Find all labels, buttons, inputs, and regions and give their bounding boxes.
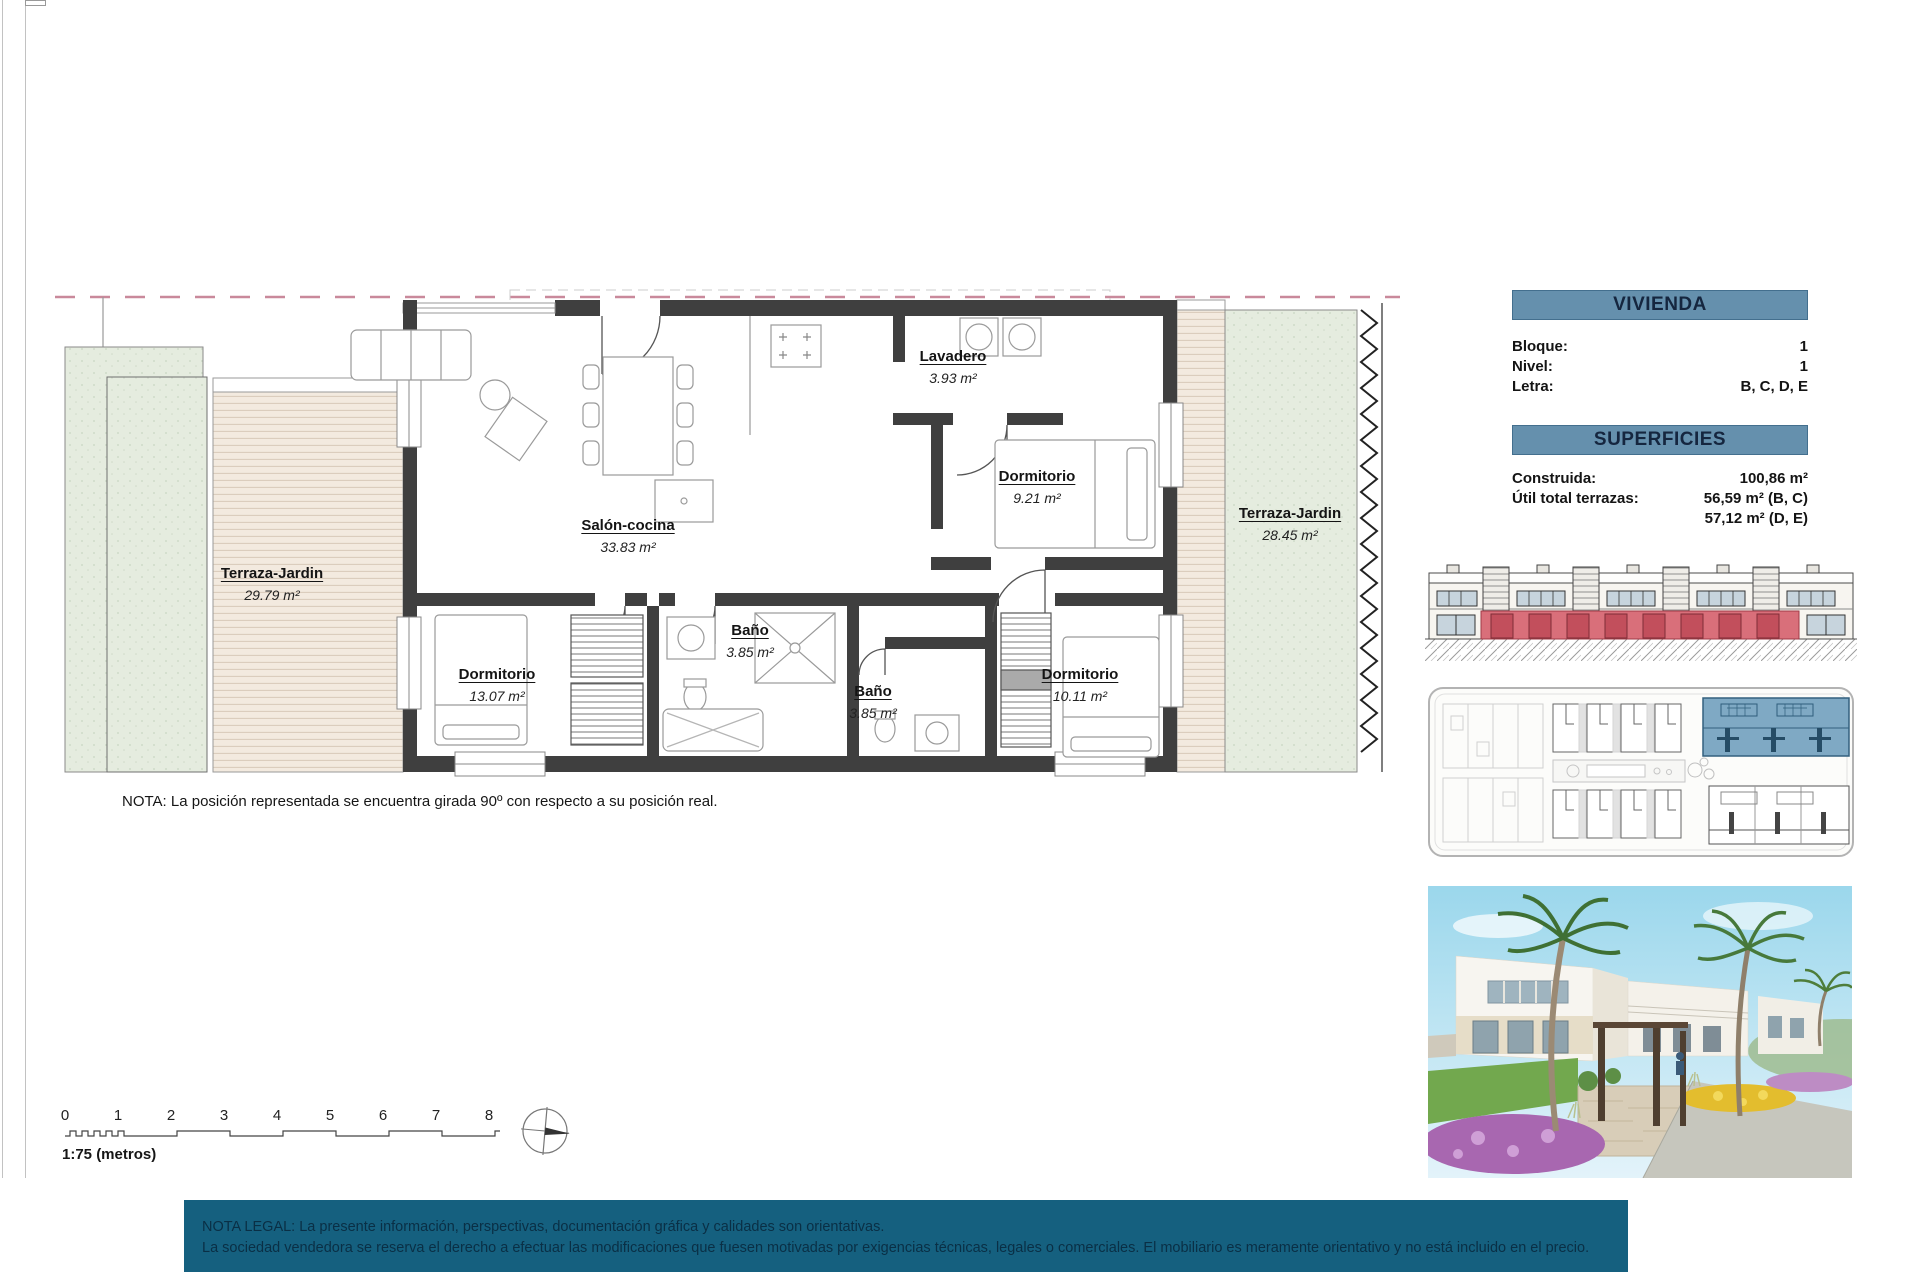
- vivienda-row-bloque: Bloque: 1: [1512, 338, 1808, 356]
- scale-tick-4: 4: [273, 1107, 281, 1124]
- superficies-row-terrazas: Útil total terrazas: 56,59 m² (B, C): [1512, 490, 1808, 508]
- scale-tick-3: 3: [220, 1107, 228, 1124]
- scale-tick-6: 6: [379, 1107, 387, 1124]
- vivienda-row-letra: Letra: B, C, D, E: [1512, 378, 1808, 396]
- plan-sheet-page: Salón-cocina 33.83 m² Lavadero 3.93 m² D…: [0, 0, 1920, 1280]
- siteplan-bottom-row-houses: [1553, 790, 1681, 838]
- legal-line-2: La sociedad vendedora se reserva el dere…: [202, 1238, 1628, 1259]
- scale-bar-graphic: [60, 1124, 500, 1144]
- room-label-terraza-left: Terraza-Jardin 29.79 m²: [221, 565, 323, 603]
- room-label-dormitorio-921: Dormitorio 9.21 m²: [999, 468, 1076, 506]
- room-label-dormitorio-1011: Dormitorio 10.11 m²: [1042, 666, 1119, 704]
- scale-tick-2: 2: [167, 1107, 175, 1124]
- left-garden: [65, 347, 207, 772]
- scale-tick-8: 8: [485, 1107, 493, 1124]
- elevation-ground-hatch: [1425, 639, 1857, 661]
- room-label-lavadero: Lavadero 3.93 m²: [920, 348, 987, 386]
- elevation-drawing: [1425, 553, 1857, 661]
- vivienda-panel-header: VIVIENDA: [1512, 290, 1808, 320]
- room-label-dormitorio-1307: Dormitorio 13.07 m²: [459, 666, 536, 704]
- room-label-bano-1: Baño 3.85 m²: [726, 622, 773, 660]
- legal-note-bar: NOTA LEGAL: La presente información, per…: [184, 1200, 1628, 1272]
- room-label-salon: Salón-cocina 33.83 m²: [581, 517, 674, 555]
- siteplan-top-row-houses: [1553, 704, 1681, 752]
- room-label-terraza-right: Terraza-Jardin 28.45 m²: [1239, 505, 1341, 543]
- scale-caption: 1:75 (metros): [62, 1146, 156, 1163]
- plan-rotation-note: NOTA: La posición representada se encuen…: [122, 793, 718, 810]
- siteplan-pool-area: [1553, 760, 1685, 782]
- scale-tick-0: 0: [61, 1107, 69, 1124]
- legal-line-1: NOTA LEGAL: La presente información, per…: [202, 1217, 1628, 1238]
- page-corner-tab: [25, 0, 46, 6]
- render-image: [1428, 886, 1852, 1178]
- superficies-panel-header: SUPERFICIES: [1512, 425, 1808, 455]
- north-arrow-icon: [518, 1104, 572, 1158]
- scale-tick-1: 1: [114, 1107, 122, 1124]
- floor-plan-drawing: [55, 285, 1405, 777]
- room-label-bano-2: Baño 3.85 m²: [849, 683, 896, 721]
- page-left-border: [2, 0, 3, 1178]
- siteplan-bottom-right-block: [1709, 786, 1849, 844]
- superficies-row-construida: Construida: 100,86 m²: [1512, 470, 1808, 488]
- terrace-hatch-zigzag: [1361, 310, 1377, 752]
- siteplan-highlighted-block: [1703, 698, 1849, 756]
- scale-tick-5: 5: [326, 1107, 334, 1124]
- vivienda-row-nivel: Nivel: 1: [1512, 358, 1808, 376]
- scale-tick-7: 7: [432, 1107, 440, 1124]
- superficies-row-terrazas-2: 57,12 m² (D, E): [1512, 510, 1808, 528]
- page-inner-border: [25, 0, 26, 1178]
- site-plan-drawing: [1425, 682, 1858, 862]
